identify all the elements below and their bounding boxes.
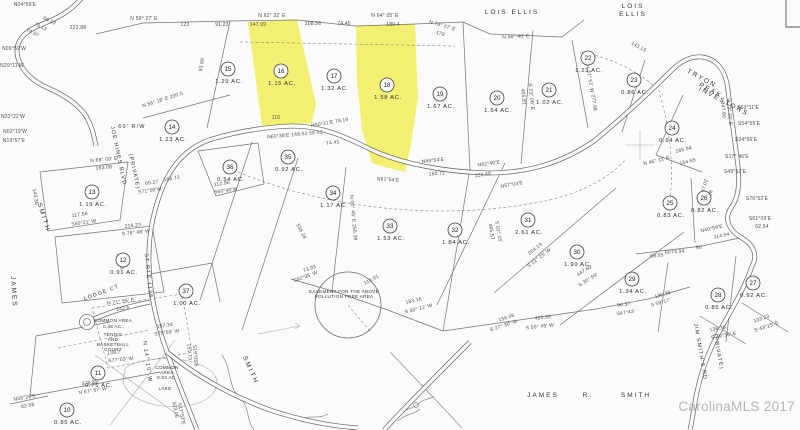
bearing-label: 91.23 [215,22,229,28]
lot-number: 33 [387,223,394,230]
area-label: POLLUTION FREE AREA [315,294,374,299]
lot-marker-37: 371.00 AC. [173,284,201,307]
bearing-label: 68.55 [650,252,664,259]
bearing-label: N 56° 40' E [502,33,530,40]
lot-marker-15: 151.29 AC. [215,62,243,85]
lot-acreage: 1.54 AC. [484,108,512,114]
lot-marker-10: 100.85 AC. [54,403,82,426]
lot-acreage: 2.61 AC. [515,230,543,236]
bearing-label: 82.58 [21,402,35,410]
lot-marker-30: 301.90 AC. [564,245,592,268]
lot-acreage: 1.53 AC. [377,236,405,242]
lot-acreage: 1.29 AC. [215,79,243,85]
lot-marker-33: 331.53 AC. [377,219,405,242]
lot-marker-17: 171.32 AC. [321,69,349,92]
lot-number: 10 [64,407,71,414]
owner-name-label: JAMES [527,392,559,399]
bearing-label: 117.56 [71,211,88,219]
bearing-label: 142.6 [116,305,130,313]
lot-number: 11 [95,370,102,377]
lot-number: 32 [452,227,459,234]
bearing-label: N19°57'E [3,138,26,144]
lot-acreage: 0.86 AC. [621,90,649,96]
lot-acreage: 1.17 AC. [320,203,348,209]
plat-map-image: 222.88N 59° 27' E12391.23N 62° 32' E147.… [0,0,800,430]
bearing-label: 183.16 [405,296,422,306]
lot-marker-26: 260.82 AC. [691,191,719,214]
bearing-label: N 59° 27' E [130,16,158,22]
lot-acreage: 1.00 AC. [173,301,201,307]
bearing-label: 405.81 [519,88,527,105]
bearing-label: N 62° 32' E [258,13,286,19]
lot-number: 23 [631,77,638,84]
lot-marker-19: 191.67 AC. [427,87,455,110]
lot-marker-31: 312.61 AC. [515,213,543,236]
lot-acreage: 0.75 AC. [85,383,113,389]
bearing-label: 180.4 [386,22,400,28]
bearing-label: 90 [696,245,702,251]
lot-acreage: 0.85 AC. [54,420,82,426]
lot-number: 37 [183,288,190,295]
bearing-label: N29°11'W [0,63,24,69]
bearing-label: N 00° 45' E 256.39 [348,195,358,241]
bearing-label: N 64° 05' E [371,13,399,19]
lot-number: 15 [225,66,232,73]
lot-acreage: 0.83 AC. [657,213,685,219]
bearing-label: S54°55'E [738,121,761,127]
bearing-label: S34°56'E [735,137,758,143]
owner-name-label: SMITH [621,392,651,399]
lot-marker-13: 131.19 AC. [79,185,107,208]
bearing-label: N09°59'W [2,46,26,52]
lot-number: 34 [330,190,337,197]
bearing-label: S76°52'E [746,196,769,202]
bearing-label: N49°54'E [421,157,445,165]
bearing-label: 265.94 [675,145,692,155]
lot-marker-28: 280.85 AC. [705,288,733,311]
bearing-label: S 50° 45' W [525,323,554,332]
bearing-label: 222.88 [70,25,87,31]
lot-number: 25 [667,200,674,207]
bearing-label: N60°38'E 148.52 56.01 [267,130,323,141]
sheet-corner-line [786,0,800,27]
owner-name-label: ELLIS [619,11,647,18]
lot-number: 20 [494,95,501,102]
lot-acreage: 1.23 AC. [575,68,603,74]
bearing-label: 123.48 [474,171,491,179]
lot-marker-20: 201.54 AC. [484,91,512,114]
lot-acreage: 1.90 AC. [564,262,592,268]
road-name-label: (PRIVATE) [127,153,140,190]
area-label: COURT [104,347,122,352]
owner-name-label: LOIS [622,3,645,10]
bearing-label: 160.71 [428,170,445,177]
bearing-label: 110 [272,115,281,121]
bearing-label: 179 [435,30,445,38]
bearing-label: S60°21' W [71,218,97,227]
bearing-label: 163.08 [95,164,112,171]
area-label: COMMON AREA [94,318,133,323]
bearing-label: N32°22'W [1,114,25,120]
lot-number: 31 [525,217,532,224]
lot-acreage: 1.19 AC. [79,202,107,208]
lot-acreage: 1.67 AC. [427,104,455,110]
lot-acreage: 0.82 AC. [691,208,719,214]
cul-de-sac-inner [82,317,93,328]
road-southeast-crossing-inner [384,342,470,430]
bearing-label: 65.27 [145,179,159,187]
lot-acreage: 0.94 AC. [659,138,687,144]
bearing-label: 143.13 [630,41,647,54]
lot-number: 12 [120,257,127,264]
watermark-text: CarolinaMLS 2017 [678,399,795,414]
bearing-label: 62.54 [755,224,769,230]
bearing-label: N57°04'E [500,180,524,190]
lot-number: 27 [750,280,757,287]
bearing-label: 74.57 [25,28,40,39]
lot-marker-12: 120.91 AC. [110,253,138,276]
lot-acreage: 0.54 AC. [217,177,245,183]
lot-marker-14: 141.23 AC. [159,120,187,143]
lot-acreage: 0.92 AC. [740,293,768,299]
area-label: 0.46 AC. [103,324,123,329]
lot-number: 19 [437,91,444,98]
bearing-label: N50°21'E 79.19 [311,117,349,129]
owner-name-label: JAMES [9,276,18,308]
bearing-label: 74.41 [326,139,340,147]
bearing-label: S49°52'E [724,169,747,175]
lot-marker-36: 360.54 AC. [217,160,245,183]
lot-acreage: 0.85 AC. [705,305,733,311]
lot-number: 18 [384,82,391,89]
lot-acreage: 1.84 AC. [442,240,470,246]
lot-number: 17 [331,73,338,80]
area-label: LAKE [159,386,172,391]
lot-number: 22 [585,55,592,62]
bearing-label: 536.18 [294,223,307,240]
bearing-label: 108.56 [305,21,322,27]
bearing-label: 123 [181,22,190,28]
bearing-label: N 68° 09' E [90,156,118,164]
owner-name-label: LOIS ELLIS [485,9,539,16]
plat-svg: 222.88N 59° 27' E12391.23N 62° 32' E147.… [0,0,800,430]
bearing-label: N02°19'W [3,129,27,135]
lot-number: 29 [629,276,636,283]
bearing-label: 147.99 [250,22,267,28]
lot-acreage: 1.02 AC. [536,100,564,106]
owner-name-label: R. [583,392,594,399]
lot-number: 28 [715,292,722,299]
bearing-label: N 56° 18' E 230.5 [142,91,184,110]
bearing-label: 114.94 [713,231,730,240]
lot-marker-21: 211.02 AC. [536,83,564,106]
bearing-label: N62°40'E [477,159,501,168]
lot-number: 30 [574,249,581,256]
bearing-label: 74.45 [337,21,351,27]
creek-lines [222,352,462,430]
bearing-label: 154.65 [679,157,696,167]
lot-number: 24 [669,125,676,132]
lot-number: 14 [169,124,176,131]
bearing-label: 420.39 [534,314,551,322]
lot-number: 13 [89,189,96,196]
lot-marker-25: 250.83 AC. [657,196,685,219]
bearing-label: S77°03' W [108,356,134,365]
owner-name-label: SMITH [35,202,51,233]
bearing-label: 93.89 [198,58,206,72]
lot-acreage: 0.91 AC. [110,270,138,276]
lot-marker-11: 110.75 AC. [85,366,113,389]
lot-acreage: 1.32 AC. [321,86,349,92]
bearing-label: S67°43' [616,309,635,318]
lot-acreage: 0.92 AC. [275,167,303,173]
spring-symbol [414,403,419,408]
lot-marker-35: 350.92 AC. [275,150,303,173]
lot-number: 35 [285,154,292,161]
bearing-label: S17° 46'E [725,154,749,160]
bearing-label: S 76° 48' W [121,229,150,238]
road-name-label: ST RTE 1136 [143,253,154,299]
bearing-label: 74.94 [671,248,685,255]
lot-marker-32: 321.84 AC. [442,223,470,246]
bearing-label: 96.37 [617,301,631,309]
bearing-label: N 46° 11' E [643,155,671,167]
lot-number: 36 [227,164,234,171]
bearing-label: 115.01 [363,274,380,287]
lot-acreage: 1.34 AC. [619,289,647,295]
lot-number: 16 [278,68,285,75]
lot-acreage: 1.58 AC. [374,95,402,101]
lot-marker-29: 291.34 AC. [619,272,647,295]
bearing-label: S61°09'E [749,216,772,222]
road-name-label: 60' R/W [118,124,145,130]
bearing-label: S19°05'E [191,345,199,368]
bearing-label: S 23° 06' E [527,83,536,111]
lot-marker-24: 240.94 AC. [659,121,687,144]
owner-name-label: SMITH [241,355,260,385]
lot-number: 21 [546,87,553,94]
lot-acreage: 1.15 AC. [268,81,296,87]
area-label: 0.93 AC. [157,375,177,380]
lot-marker-23: 230.86 AC. [621,73,649,96]
lot-acreage: 1.23 AC. [159,137,187,143]
lot-number: 26 [701,195,708,202]
bearing-label: N61°54'E [377,176,400,184]
bearing-label: N04°59'E [14,2,37,8]
road-name-label: N 14° 10' W [141,341,153,383]
bearing-label: S 59°17' [650,297,671,308]
lot-marker-22: 221.23 AC. [575,51,603,74]
